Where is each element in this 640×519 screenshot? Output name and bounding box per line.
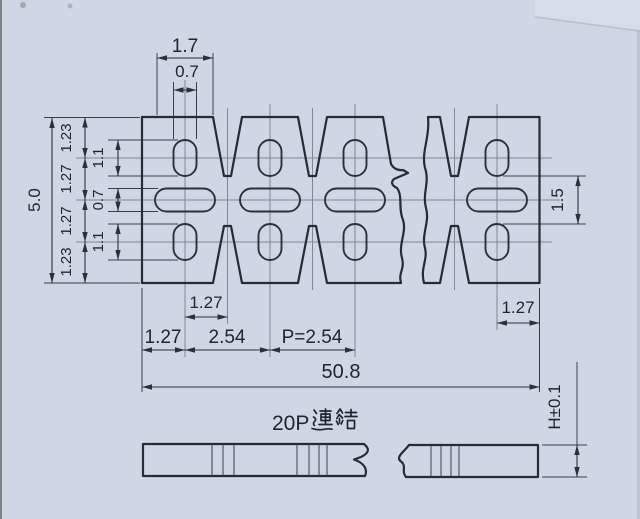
dim-end-margin: 1.27 [501,298,534,317]
dim-web-height: 1.5 [548,188,567,212]
side-view-label-prefix: 20P [272,412,309,435]
dim-hole-width: 0.7 [175,62,199,81]
dim-row-1: 1.23 [58,123,75,152]
dim-tab-width: 1.7 [172,36,198,57]
dim-row-4: 1.23 [58,247,75,276]
page-background [0,0,640,519]
dim-hole-height-bottom: 1.1 [90,232,107,253]
dim-hole-height-top: 1.1 [90,148,107,169]
dim-notch-offset: 1.27 [189,293,222,312]
dim-overall-width: 50.8 [322,361,361,383]
dim-row-3: 1.27 [58,206,75,235]
dim-pitch: P=2.54 [282,327,343,348]
dim-row-2: 1.27 [58,164,75,193]
dim-span: 2.54 [209,327,246,348]
technical-drawing: 1.7 0.7 5.0 1.23 1.27 1.27 1.23 1.1 0.7 … [0,0,640,519]
dim-overall-height: 5.0 [25,188,44,212]
dim-height-tolerance: H±0.1 [545,384,564,429]
dim-edge-margin: 1.27 [145,327,182,348]
dim-slot-height: 0.7 [90,190,107,211]
